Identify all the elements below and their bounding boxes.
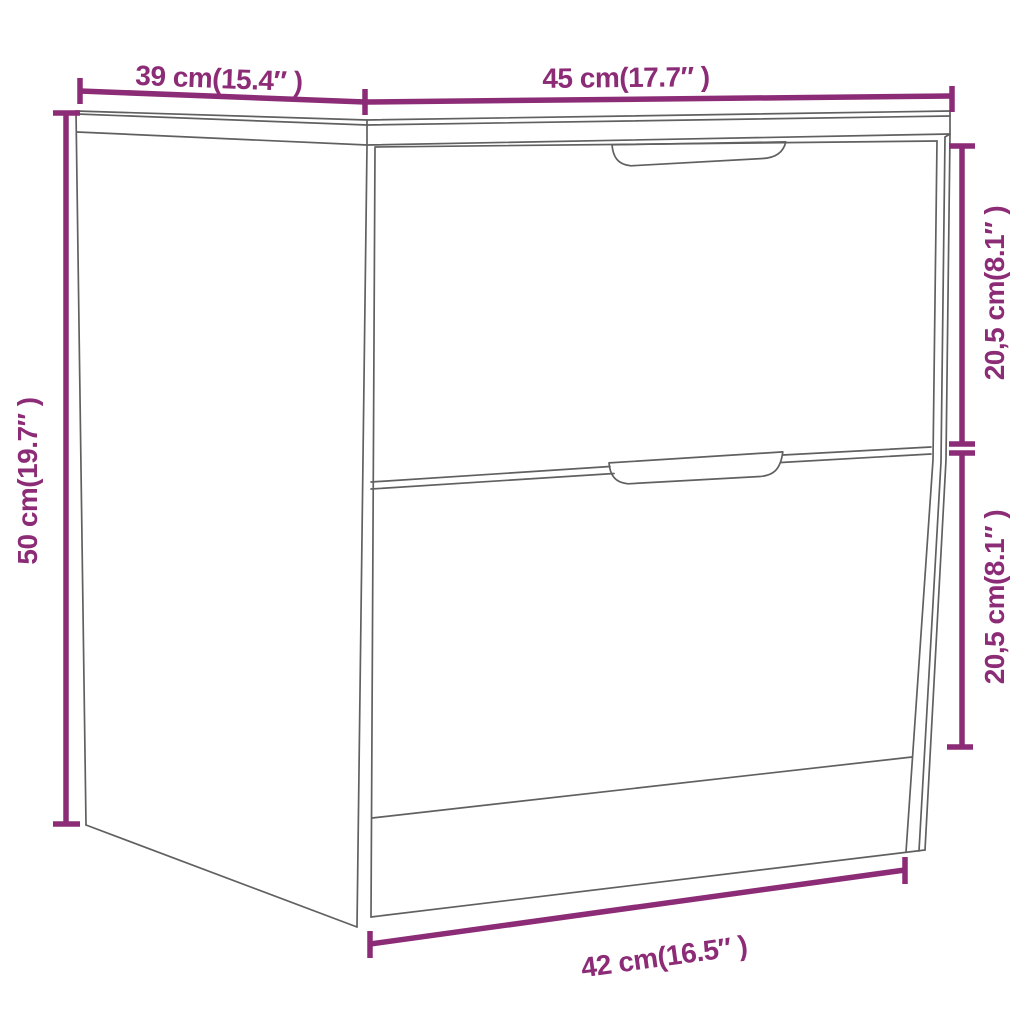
top-drawer-handle (612, 142, 786, 166)
dim-bottom-drawer-height-label: 20,5 cm(8.1″ ) (979, 510, 1010, 685)
bottom-drawer (372, 452, 912, 818)
dim-bottom-drawer-height-line (947, 453, 975, 747)
cabinet-top-panel (76, 111, 950, 145)
product-dimension-image: 39 cm(15.4″ ) 45 cm(17.7″ ) 50 cm(19.7″ … (0, 0, 1024, 1024)
nightstand-dimension-diagram: 39 cm(15.4″ ) 45 cm(17.7″ ) 50 cm(19.7″ … (0, 0, 1024, 1024)
cabinet-left-side-panel (76, 111, 375, 927)
dimension-labels: 39 cm(15.4″ ) 45 cm(17.7″ ) 50 cm(19.7″ … (12, 60, 1010, 984)
dimension-lines (53, 78, 975, 958)
dim-base-width-label: 42 cm(16.5″ ) (579, 930, 749, 984)
cabinet-right-side-edges (906, 134, 950, 852)
dim-height-label: 50 cm(19.7″ ) (12, 397, 43, 564)
bottom-drawer-handle (609, 452, 783, 484)
dim-height-50-line (53, 113, 80, 824)
dim-top-drawer-height-label: 20,5 cm(8.1″ ) (979, 206, 1010, 381)
furniture-line-art (76, 111, 950, 927)
top-drawer (375, 141, 937, 166)
dim-width-label: 45 cm(17.7″ ) (542, 61, 710, 94)
dim-top-drawer-height-line (949, 146, 975, 444)
dim-depth-label: 39 cm(15.4″ ) (135, 60, 303, 97)
